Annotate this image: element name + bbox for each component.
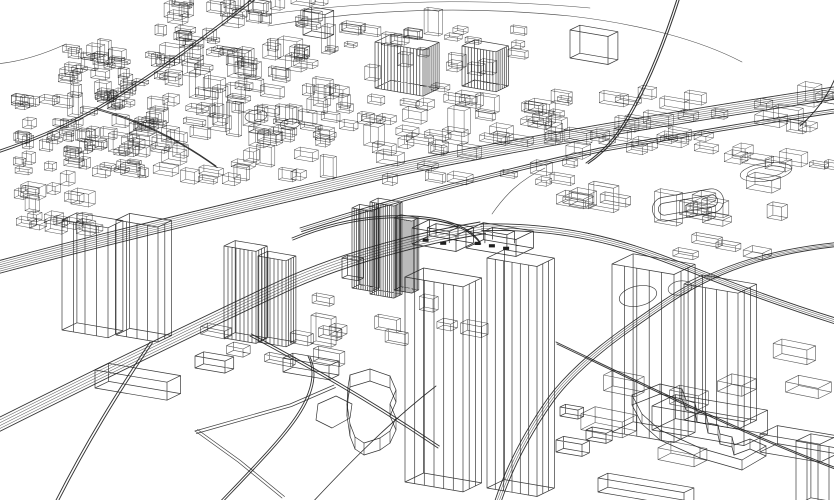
building-glass-tower-east-b: [684, 275, 757, 429]
building-glass-tower-east-a: [612, 254, 695, 443]
pond-east: [617, 282, 658, 309]
road-cross-plaza-a: [250, 336, 438, 448]
road-rail-main: [0, 86, 834, 262]
road-plateau-loop: [214, 356, 312, 500]
distant-road: [0, 44, 66, 64]
roads-group: [0, 0, 834, 500]
road-diag-top-left: [0, 0, 256, 152]
road-road-bottom-left: [54, 343, 152, 500]
cluster-slabs-bottom-right: [581, 339, 831, 467]
road-highway-right: [482, 230, 834, 326]
road-center-ring: [292, 216, 480, 242]
courtyard-building-b-entrance-mark: [489, 244, 495, 247]
building-slab-bottom-right-east: [760, 426, 834, 463]
pond-south-base: [316, 396, 352, 428]
parcel-edge-a-offset: [198, 430, 285, 497]
courtyard-buildings-group: [412, 220, 533, 257]
road-s-curve-east: [497, 245, 834, 500]
cluster-boxes-bottom-center: [201, 323, 345, 367]
cluster-blocks-center-band: [358, 89, 575, 186]
courtyard-building-a-entrance-mark: [423, 239, 429, 242]
road-s-curve-east: [496, 244, 834, 500]
parcel-edge-b: [195, 385, 334, 431]
road-s-curve-east: [492, 242, 834, 500]
cluster-boxes-plaza: [311, 293, 488, 347]
road-highway-left-sweep: [0, 229, 483, 427]
road-cross-plaza-a: [251, 334, 439, 446]
building-box-bottom-pair-a: [195, 352, 234, 373]
building-glass-tower-b: [487, 250, 554, 497]
road-s-curve-east: [494, 243, 834, 500]
landmark-buildings-group: [62, 7, 834, 500]
courtyard-building-b-entrance-mark: [503, 247, 509, 250]
wireframe-city-canvas: [0, 0, 834, 500]
terraced-plateau-top: [347, 369, 396, 443]
road-road-bottom-left: [52, 342, 150, 500]
cluster-blocks-midband-left: [100, 101, 336, 186]
building-box-bottom-small-a: [556, 436, 589, 456]
parcel-edge-a: [195, 431, 282, 498]
building-glass-tower-a: [405, 268, 482, 492]
building-long-box-bottom-south: [598, 473, 694, 500]
road-plateau-loop: [216, 357, 314, 500]
road-highway-right: [481, 228, 834, 324]
courtyard-building-b-entrance-mark: [475, 242, 481, 245]
parcel-boundaries-group: [195, 385, 336, 498]
cluster-blocks-left-mid: [14, 170, 103, 236]
road-highway-left-sweep: [0, 234, 486, 432]
road-road-upper-parallel: [302, 112, 834, 232]
building-long-box-bottom-left: [95, 363, 181, 400]
building-tall-box-top-right: [570, 25, 618, 64]
cluster-blocks-around-hatch: [361, 7, 528, 92]
wireframe-city-stage: [0, 0, 834, 500]
cluster-blocks-far-left-low: [11, 88, 167, 178]
building-box-bottom-small-c: [560, 404, 584, 419]
courtyard-building-a-entrance-mark: [440, 242, 446, 245]
building-hatched-slab-a: [375, 34, 439, 96]
cluster-blocks-right-mid: [556, 172, 787, 260]
